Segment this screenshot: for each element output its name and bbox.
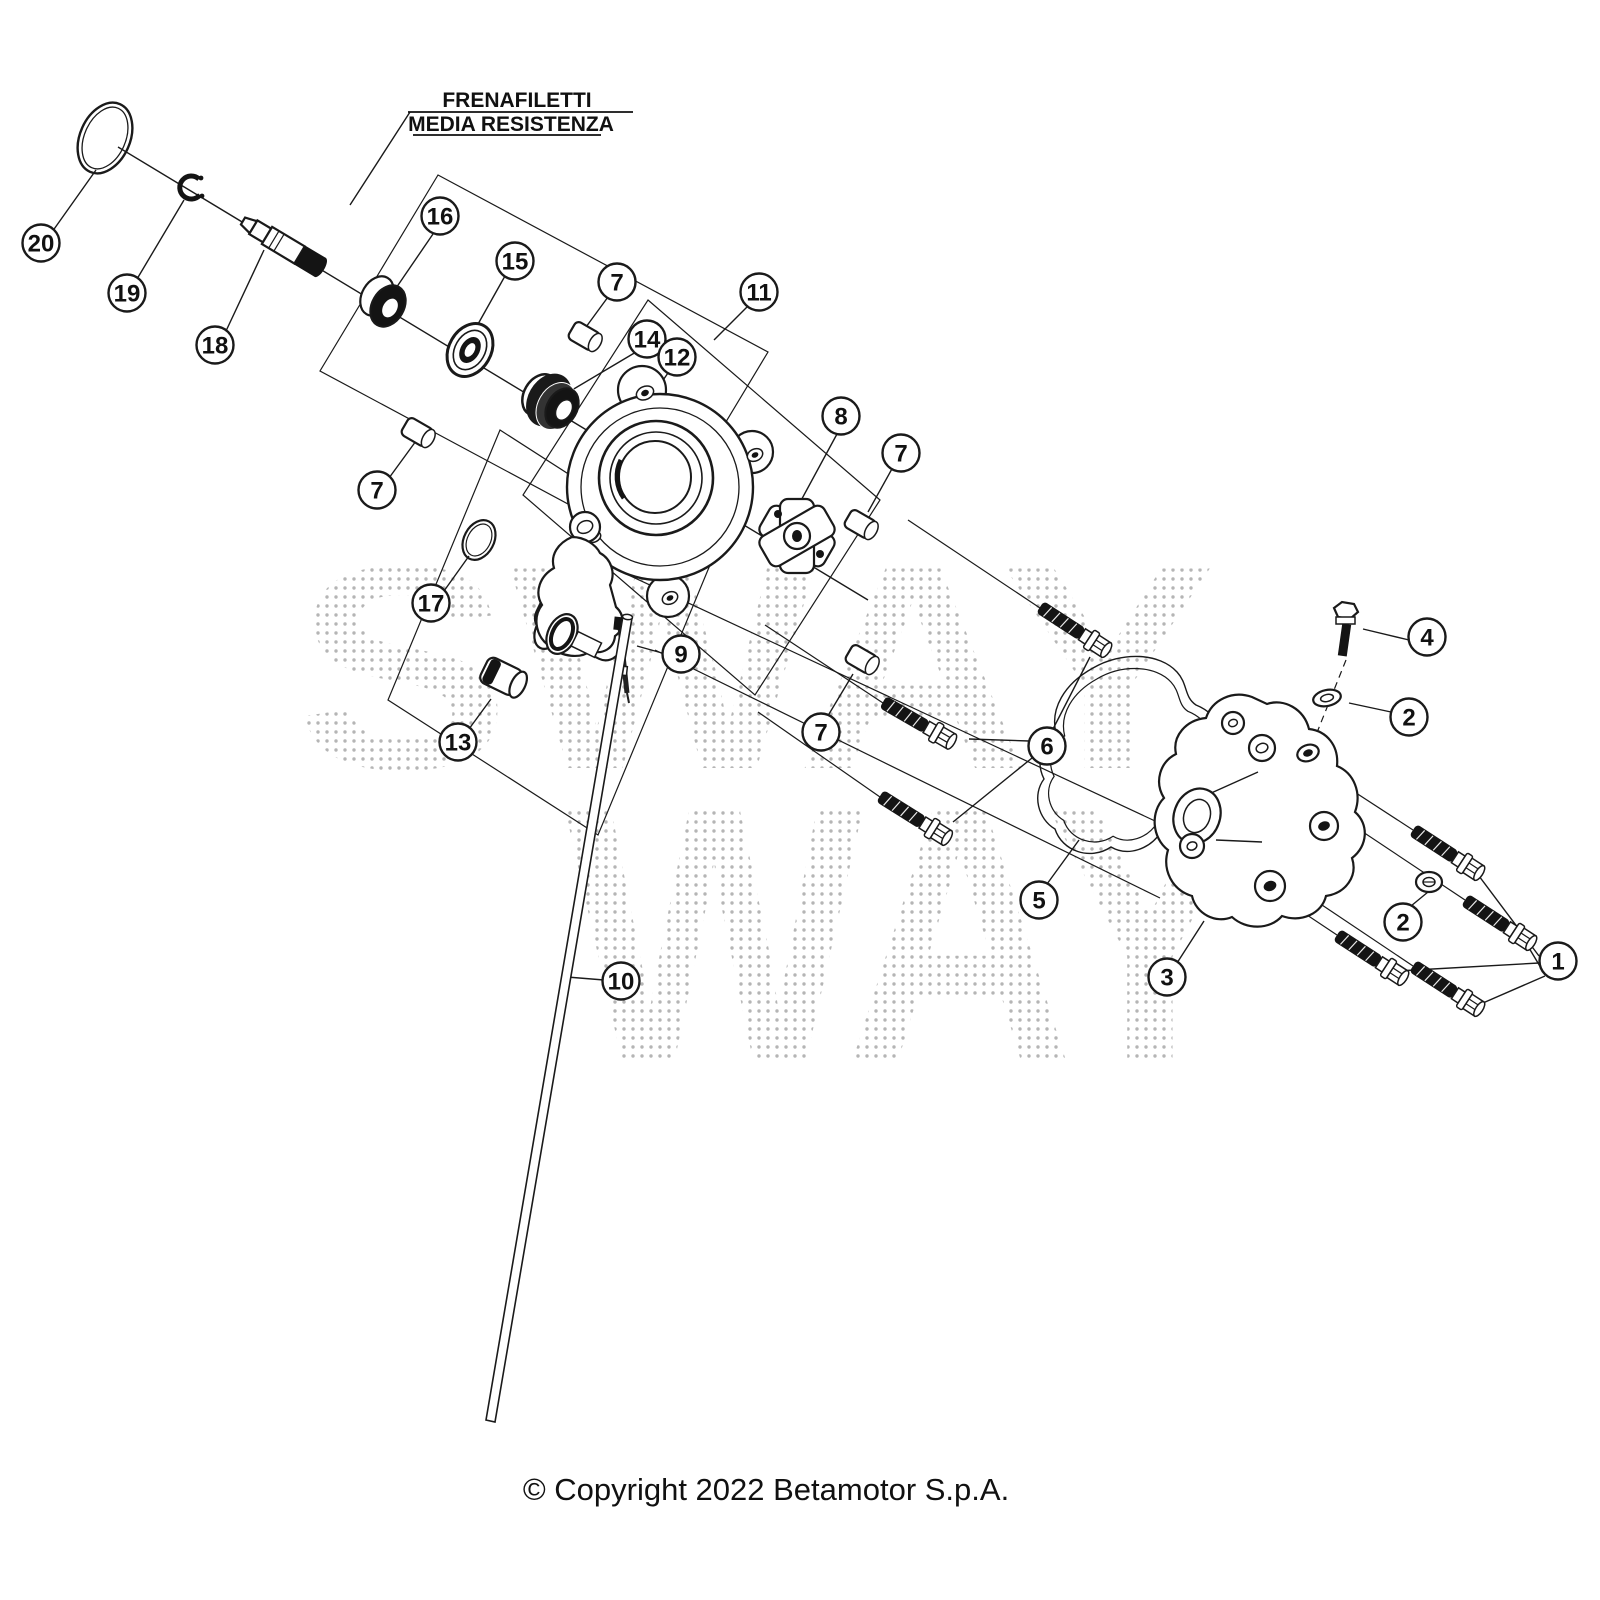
callout-2a-number: 2 xyxy=(1402,705,1415,732)
exploded-parts-diagram: SWAY WAY xyxy=(0,0,1600,1600)
parts-diagram-page: SWAY WAY xyxy=(0,0,1600,1600)
callout-11-number: 11 xyxy=(746,280,771,307)
callout-19-number: 19 xyxy=(114,281,141,308)
callout-6: 6 xyxy=(1029,728,1066,765)
callout-15: 15 xyxy=(497,243,534,280)
callout-2b: 2 xyxy=(1385,904,1422,941)
callout-7c-number: 7 xyxy=(370,478,383,505)
part-impeller-8 xyxy=(756,499,837,573)
callout-4-number: 4 xyxy=(1420,625,1434,652)
callout-4: 4 xyxy=(1409,619,1446,656)
callout-2a: 2 xyxy=(1391,699,1428,736)
callout-7a: 7 xyxy=(599,264,636,301)
part-washer-2a xyxy=(1312,687,1343,708)
part-seal-16 xyxy=(354,270,413,333)
callout-7b: 7 xyxy=(883,435,920,472)
callout-2b-number: 2 xyxy=(1396,910,1409,937)
callout-18: 18 xyxy=(197,327,234,364)
part-washer-2b xyxy=(1416,872,1442,892)
callout-9-number: 9 xyxy=(674,642,687,669)
callout-7d-number: 7 xyxy=(814,720,827,747)
callout-6-number: 6 xyxy=(1040,734,1053,761)
callout-1-number: 1 xyxy=(1551,949,1564,976)
callout-9: 9 xyxy=(663,636,700,673)
part-bearing-15 xyxy=(438,315,502,384)
callout-5: 5 xyxy=(1021,882,1058,919)
callout-20-number: 20 xyxy=(28,231,55,258)
annotation-frenafiletti: FRENAFILETTI MEDIA RESISTENZA xyxy=(408,89,633,136)
callout-7c: 7 xyxy=(359,472,396,509)
part-shaft-18 xyxy=(237,212,329,280)
callout-19: 19 xyxy=(109,275,146,312)
callout-16-number: 16 xyxy=(427,204,454,231)
callout-13-number: 13 xyxy=(445,730,472,757)
part-drain-bolt-4 xyxy=(1334,602,1358,657)
callout-17: 17 xyxy=(413,585,450,622)
part-mech-seal-14 xyxy=(515,365,585,436)
callout-18-number: 18 xyxy=(202,333,229,360)
callout-8-number: 8 xyxy=(834,404,847,431)
callout-10-number: 10 xyxy=(608,969,635,996)
callout-7b-number: 7 xyxy=(894,441,907,468)
callout-13: 13 xyxy=(440,724,477,761)
copyright-text: © Copyright 2022 Betamotor S.p.A. xyxy=(523,1472,1009,1507)
callout-7d: 7 xyxy=(803,714,840,751)
callout-11: 11 xyxy=(741,274,778,311)
callout-5-number: 5 xyxy=(1032,888,1045,915)
callout-17-number: 17 xyxy=(418,591,445,618)
part-oring-20 xyxy=(67,94,143,182)
callout-12-number: 12 xyxy=(664,345,691,372)
callout-12: 12 xyxy=(659,339,696,376)
part-pin-7c xyxy=(400,416,438,450)
callout-20: 20 xyxy=(23,225,60,262)
annotation-line-1: FRENAFILETTI xyxy=(442,89,591,112)
part-cover-3 xyxy=(1155,695,1365,927)
callout-1: 1 xyxy=(1540,943,1577,980)
callout-8: 8 xyxy=(823,398,860,435)
part-bolt-1b xyxy=(1459,891,1540,954)
callout-15-number: 15 xyxy=(502,249,529,276)
callout-10: 10 xyxy=(603,963,640,1000)
annotation-line-2: MEDIA RESISTENZA xyxy=(408,113,614,136)
watermark-line-2: WAY xyxy=(565,733,1255,1135)
part-pin-7a xyxy=(567,320,605,354)
callout-3-number: 3 xyxy=(1160,965,1173,992)
callout-7a-number: 7 xyxy=(610,270,623,297)
callout-14-number: 14 xyxy=(634,327,661,354)
callout-16: 16 xyxy=(422,198,459,235)
callout-3: 3 xyxy=(1149,959,1186,996)
